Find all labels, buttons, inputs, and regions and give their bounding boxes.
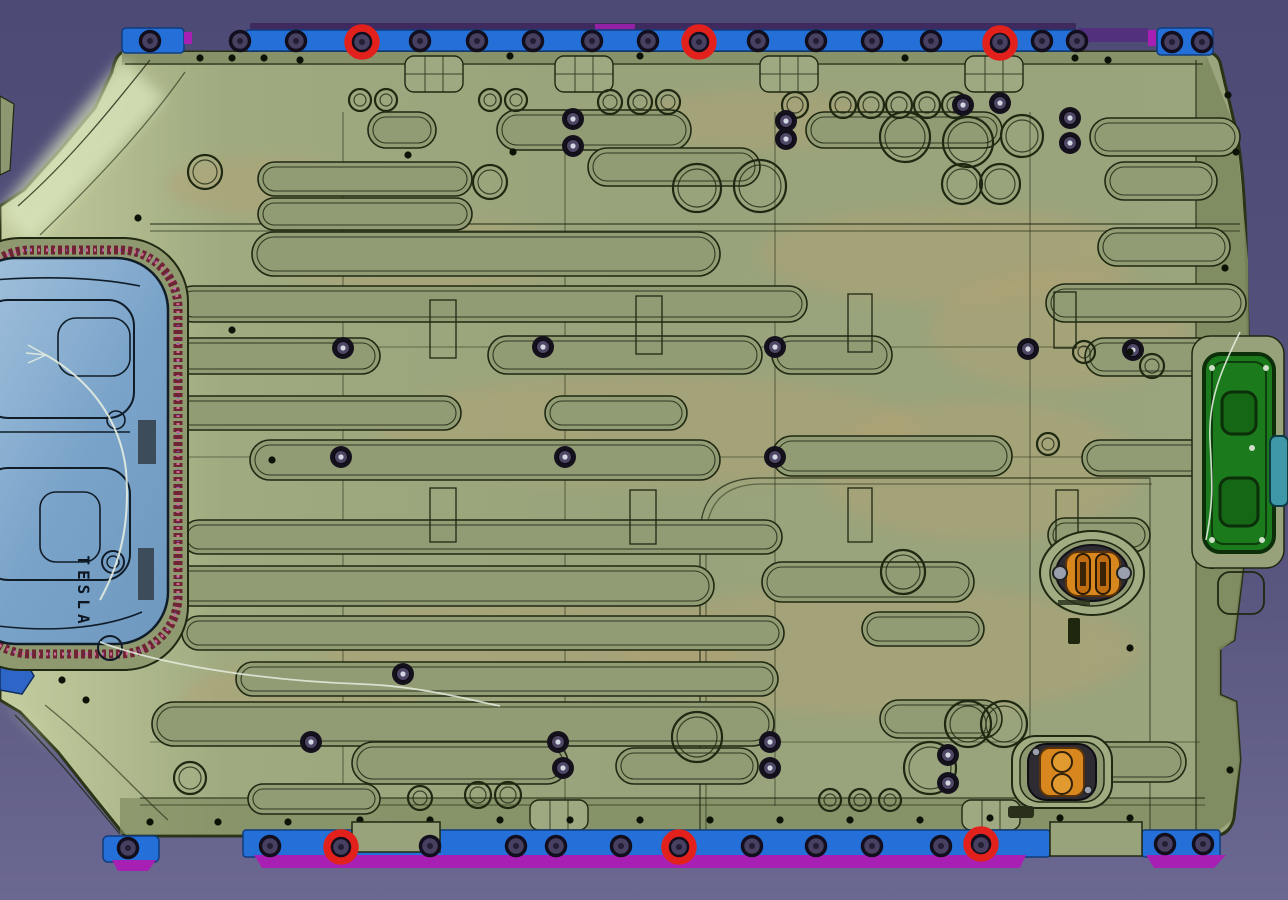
coolant-channel [1090, 118, 1240, 156]
rail-bolt [863, 837, 882, 856]
hv-a-screw-right [1117, 566, 1131, 580]
rail-bolt [411, 32, 430, 51]
rivet-dot [636, 52, 643, 59]
rivet-dot [986, 814, 993, 821]
rivet-dot [901, 54, 908, 61]
fastener-screw [759, 757, 781, 779]
hv-a-label-marks [1058, 600, 1090, 605]
pack-top-band [122, 52, 1206, 65]
rail-bolt [507, 837, 526, 856]
frunk-cover-assembly[interactable]: TESLA [0, 238, 188, 670]
rivet-dot [1056, 814, 1063, 821]
coolant-channel [252, 232, 720, 276]
fastener-screw [1122, 339, 1144, 361]
coolant-channel [352, 742, 568, 784]
fastener-screw [764, 336, 786, 358]
fastener-screw [952, 94, 974, 116]
fastener-screw [775, 128, 797, 150]
rivet-dot [1232, 148, 1239, 155]
rail-bolt [421, 837, 440, 856]
coolant-channel [1098, 228, 1230, 266]
rivet-dot [776, 816, 783, 823]
fastener-screw [532, 336, 554, 358]
rail-bolt [612, 837, 631, 856]
coolant-channel [165, 396, 461, 430]
hv-b-terminal-1 [1052, 752, 1072, 772]
rail-bolt [1156, 835, 1175, 854]
crossmember-bridge [405, 56, 463, 92]
fastener-screw [764, 446, 786, 468]
rivet-dot [1126, 814, 1133, 821]
rivet-dot [1224, 91, 1231, 98]
top-mount-rail[interactable] [122, 23, 1213, 55]
coolant-channel [368, 112, 436, 148]
hv-b-terminal-2 [1052, 774, 1072, 794]
hv-b-vent [1008, 806, 1034, 818]
rail-bolt [749, 32, 768, 51]
rail-bolt [547, 837, 566, 856]
fastener-screw [392, 663, 414, 685]
rail-bolt [332, 838, 351, 857]
rivet-dot [1126, 348, 1133, 355]
top-rail-right-tab-magenta [1148, 30, 1156, 46]
rivet-dot [506, 52, 513, 59]
rivet-dot [566, 816, 573, 823]
hv-a-screw-left [1053, 566, 1067, 580]
frunk-panel-slot-b [138, 548, 154, 600]
coolant-channel [182, 520, 782, 554]
rivet-dot [1226, 766, 1233, 773]
rail-bolt [1194, 835, 1213, 854]
rail-bolt [261, 837, 280, 856]
rail-bolt [468, 32, 487, 51]
coolant-channel [152, 566, 714, 606]
rivet-dot [268, 456, 275, 463]
fastener-screw [1017, 338, 1039, 360]
rail-bolt [743, 837, 762, 856]
fastener-screw [552, 757, 574, 779]
rail-bolt [863, 32, 882, 51]
coolant-channel [236, 662, 778, 696]
rail-bolt [1068, 32, 1087, 51]
coolant-channel [258, 162, 472, 196]
hv-a-stub [1068, 618, 1080, 644]
rail-bolt [807, 837, 826, 856]
coolant-channel [248, 784, 380, 814]
tesla-logo: TESLA [74, 555, 93, 628]
rivet-dot [214, 818, 221, 825]
rail-bolt [231, 32, 250, 51]
bottom-rail-magenta [254, 855, 1026, 868]
coolant-channel [250, 440, 720, 480]
rivet-dot [134, 214, 141, 221]
rivet-dot [82, 696, 89, 703]
rivet-dot [496, 816, 503, 823]
fastener-screw [989, 92, 1011, 114]
coolant-channel [545, 396, 687, 430]
service-cover-feature-top [1222, 392, 1256, 434]
rivet-dot [58, 676, 65, 683]
coolant-channel [762, 562, 974, 602]
coolant-channel [258, 198, 472, 230]
frunk-panel-slot-a [138, 420, 156, 464]
rivet-dot [228, 54, 235, 61]
rail-bolt [583, 32, 602, 51]
hv-a-slot-2 [1100, 562, 1106, 586]
rivet-dot [296, 56, 303, 63]
rail-bolt [1033, 32, 1052, 51]
coolant-channel [862, 612, 984, 646]
coolant-channel [152, 702, 774, 746]
bottom-rail-notch-right [1050, 822, 1142, 856]
rivet-dot [509, 148, 516, 155]
top-rail-left-tab-magenta [184, 32, 192, 44]
rivet-dot [196, 54, 203, 61]
fastener-screw [759, 731, 781, 753]
rivet-dot [228, 326, 235, 333]
rivet-dot [706, 816, 713, 823]
coolant-channel [1105, 162, 1217, 200]
coolant-channel [616, 748, 758, 784]
rail-bolt [287, 32, 306, 51]
fastener-screw [300, 731, 322, 753]
crossmember-bridge [530, 800, 588, 830]
service-cover-feature-bottom [1220, 478, 1258, 526]
rail-bolt [353, 33, 372, 52]
fastener-screw [332, 337, 354, 359]
rail-bolt [670, 838, 689, 857]
hv-connector-b[interactable] [1008, 736, 1112, 818]
coolant-channel [182, 616, 784, 650]
fastener-screw [330, 446, 352, 468]
crossmember-bridge [760, 56, 818, 92]
coolant-channel [772, 336, 892, 374]
fastener-screw [937, 744, 959, 766]
crossmember-bridge [555, 56, 613, 92]
side-bracket-teal[interactable] [1270, 436, 1288, 506]
coolant-channel [772, 436, 1012, 476]
rivet-dot [916, 816, 923, 823]
rail-bolt [972, 836, 991, 855]
coolant-channel [497, 110, 691, 150]
rivet-dot [260, 54, 267, 61]
crossmember-bridge [965, 56, 1023, 92]
rail-bolt [524, 32, 543, 51]
rivet-dot [636, 816, 643, 823]
rail-bolt [1193, 33, 1212, 52]
bottom-rail-magenta-right [1146, 855, 1226, 868]
coolant-channel [488, 336, 762, 374]
fastener-screw [554, 446, 576, 468]
rivet-dot [1104, 56, 1111, 63]
cad-viewport[interactable]: TESLA [0, 0, 1288, 900]
rail-bolt [639, 32, 658, 51]
rail-bolt [119, 839, 138, 858]
fastener-screw [547, 731, 569, 753]
rivet-dot [404, 151, 411, 158]
rivet-dot [1071, 54, 1078, 61]
rail-bolt [932, 837, 951, 856]
rivet-dot [146, 818, 153, 825]
fastener-screw [562, 108, 584, 130]
coolant-channel [175, 286, 807, 322]
hv-b-screw-1 [1032, 748, 1040, 756]
fastener-screw [562, 135, 584, 157]
rivet-dot [1221, 264, 1228, 271]
rail-bolt [141, 32, 160, 51]
rail-bolt [1163, 33, 1182, 52]
fastener-screw [1059, 132, 1081, 154]
rivet-dot [1126, 644, 1133, 651]
hv-a-orange-plate [1066, 552, 1120, 596]
hv-b-screw-2 [1084, 786, 1092, 794]
rivet-dot [284, 818, 291, 825]
rail-bolt [922, 32, 941, 51]
hv-a-slot-1 [1080, 562, 1086, 586]
rail-bolt [991, 33, 1010, 52]
rail-bolt [690, 33, 709, 52]
rivet-dot [846, 816, 853, 823]
fastener-screw [1059, 107, 1081, 129]
rail-bolt [807, 32, 826, 51]
fastener-screw [937, 772, 959, 794]
top-rail-purple-accent [1078, 28, 1148, 42]
